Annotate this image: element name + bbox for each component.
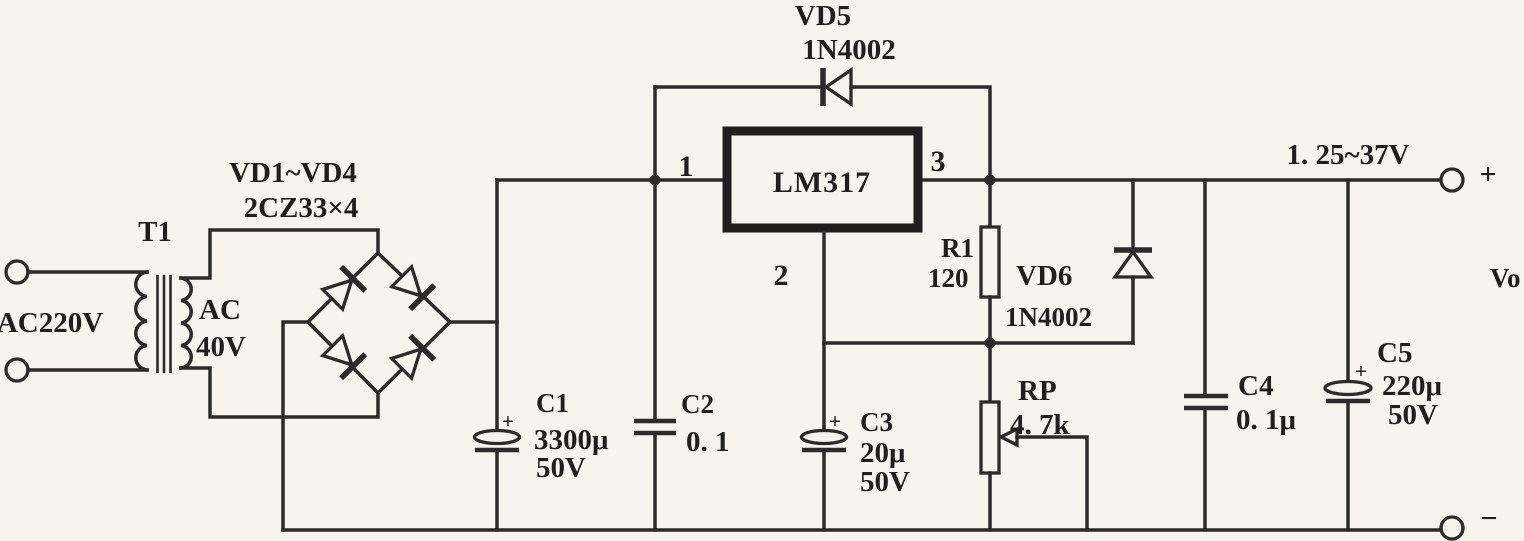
bridge-negative-drop xyxy=(283,322,308,530)
vd6-anode-triangle xyxy=(1115,252,1151,277)
c5-positive-plate xyxy=(1325,382,1371,395)
vd5-ref-label: VD5 xyxy=(795,0,851,32)
lm317-part-label: LM317 xyxy=(773,166,871,199)
r1-value-label: 120 xyxy=(928,263,969,293)
output-vo-label: Vo xyxy=(1490,263,1521,293)
c5-ref-label: C5 xyxy=(1377,337,1412,369)
input-terminal-bottom xyxy=(6,359,28,381)
c2-ref-label: C2 xyxy=(681,389,714,419)
capacitor-c5: + C5 220μ 50V xyxy=(1325,180,1443,530)
c3-ref-label: C3 xyxy=(860,407,893,437)
output-range-label: 1. 25~37V xyxy=(1286,139,1409,171)
diode-vd6: VD6 1N4002 xyxy=(1005,180,1152,343)
bridge-rectifier: VD1~VD4 2CZ33×4 xyxy=(229,157,497,530)
bridge-ref-label: VD1~VD4 xyxy=(229,157,357,189)
c1-voltage-label: 50V xyxy=(536,452,586,484)
c5-value-label: 220μ xyxy=(1382,370,1443,402)
secondary-voltage-label-line2: 40V xyxy=(196,331,246,363)
vd6-ref-label: VD6 xyxy=(1016,260,1072,292)
vd5-anode-triangle xyxy=(826,70,851,104)
vd5-part-label: 1N4002 xyxy=(802,34,895,66)
resistor-r1: R1 120 xyxy=(928,180,999,343)
rp-value-label: 4. 7k xyxy=(1010,409,1071,441)
bridge-diamond xyxy=(308,253,450,393)
c4-value-label: 0. 1μ xyxy=(1236,404,1297,436)
lm317-pin1-label: 1 xyxy=(679,150,694,183)
c5-voltage-label: 50V xyxy=(1388,399,1438,431)
c3-voltage-label: 50V xyxy=(860,466,910,498)
bridge-part-label: 2CZ33×4 xyxy=(244,192,359,224)
c5-polarity-mark: + xyxy=(1355,359,1367,383)
c1-polarity-mark: + xyxy=(502,409,514,433)
ac-input-label: AC220V xyxy=(0,307,103,339)
rp-ref-label: RP xyxy=(1018,375,1057,407)
rp-wiper-lead xyxy=(1017,437,1087,530)
potentiometer-rp: RP 4. 7k xyxy=(981,343,1087,530)
capacitor-c4: C4 0. 1μ xyxy=(1184,180,1297,530)
c3-value-label: 20μ xyxy=(860,437,906,469)
c1-ref-label: C1 xyxy=(536,388,569,418)
c4-ref-label: C4 xyxy=(1238,370,1273,402)
c3-polarity-mark: + xyxy=(829,409,841,433)
vd6-part-label: 1N4002 xyxy=(1005,302,1092,332)
output-terminal-negative xyxy=(1441,517,1463,539)
output-minus-label: − xyxy=(1480,502,1497,535)
regulator-lm317: LM317 1 3 2 xyxy=(679,131,946,292)
lm317-pin3-label: 3 xyxy=(931,145,946,178)
transformer-core xyxy=(158,276,171,372)
schematic-page: AC220V T1 AC 40V VD1~VD4 2CZ33×4 xyxy=(0,0,1524,541)
lm317-power-supply-schematic: AC220V T1 AC 40V VD1~VD4 2CZ33×4 xyxy=(0,0,1524,541)
output-terminal-positive xyxy=(1441,169,1463,191)
capacitor-c1: + C1 3300μ 50V xyxy=(475,180,610,530)
ac-input-terminals: AC220V xyxy=(0,261,147,381)
secondary-winding xyxy=(181,278,191,368)
r1-ref-label: R1 xyxy=(941,233,974,263)
secondary-voltage-label-line1: AC xyxy=(199,294,241,326)
transformer-ref-label: T1 xyxy=(138,216,172,248)
secondary-bottom-lead xyxy=(181,368,378,417)
input-terminal-top xyxy=(6,261,28,283)
r1-body xyxy=(981,227,999,297)
c2-value-label: 0. 1 xyxy=(686,426,730,458)
primary-winding xyxy=(136,272,147,370)
lm317-pin2-label: 2 xyxy=(774,259,789,292)
transformer-t1: T1 AC 40V xyxy=(136,216,378,417)
rp-body xyxy=(981,402,999,473)
output-plus-label: + xyxy=(1479,158,1496,191)
